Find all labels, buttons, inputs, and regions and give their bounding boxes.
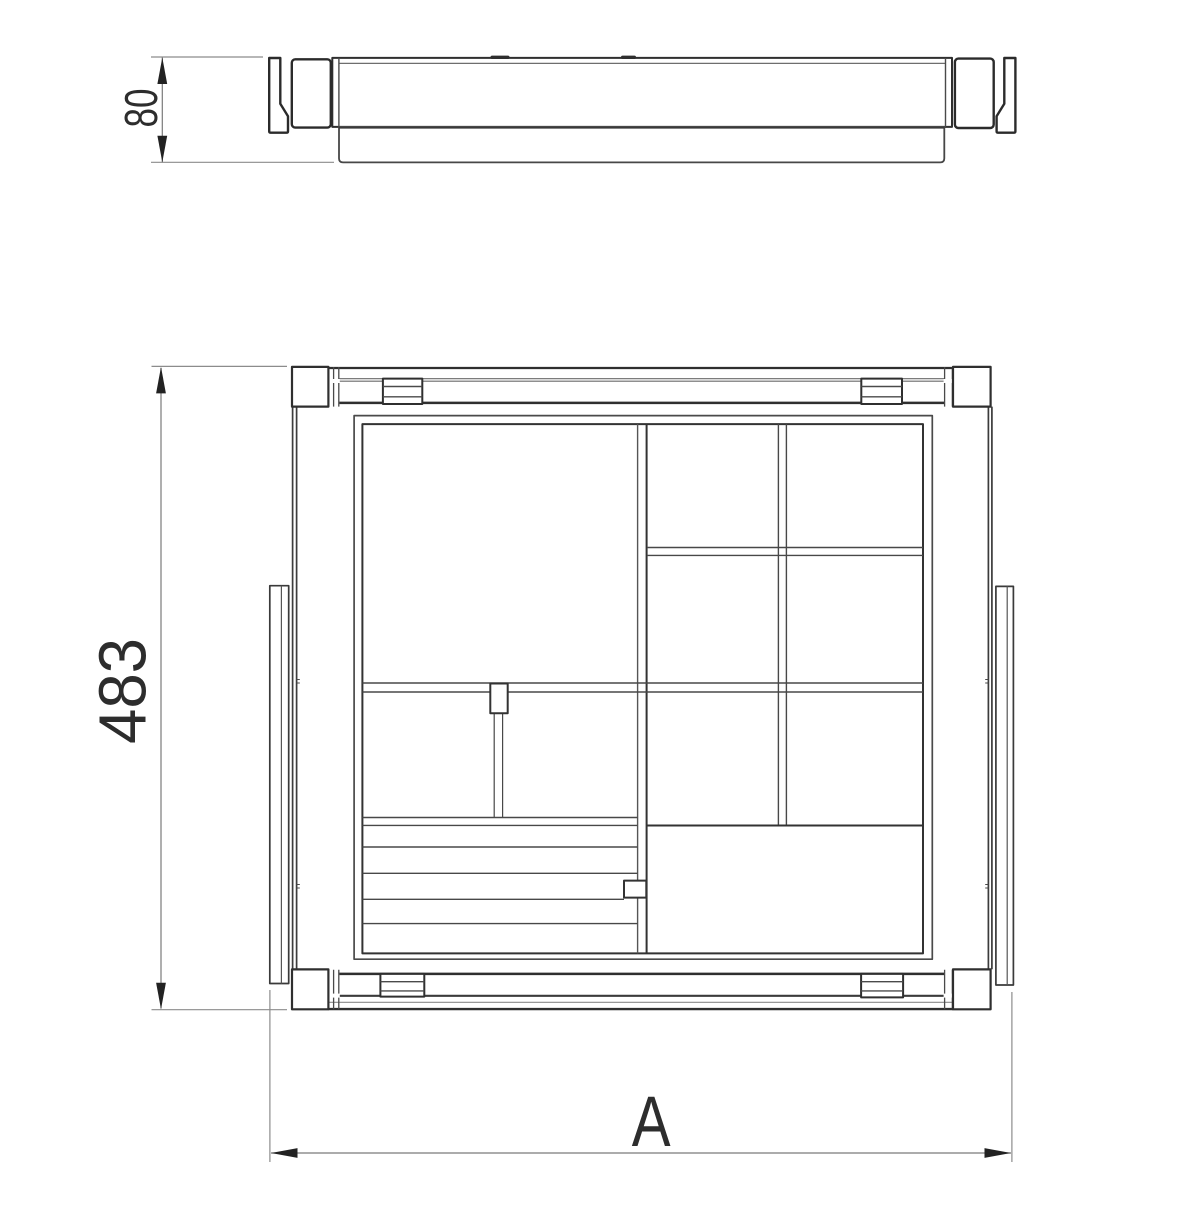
svg-text:483: 483 bbox=[85, 638, 160, 744]
svg-text:A: A bbox=[632, 1081, 671, 1161]
svg-text:80: 80 bbox=[115, 89, 167, 128]
